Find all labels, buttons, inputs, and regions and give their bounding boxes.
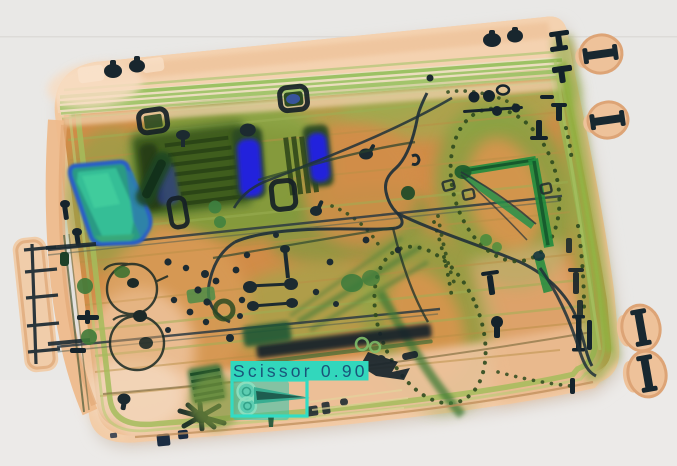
svg-text:Scissor 0.90: Scissor 0.90 bbox=[233, 361, 368, 381]
